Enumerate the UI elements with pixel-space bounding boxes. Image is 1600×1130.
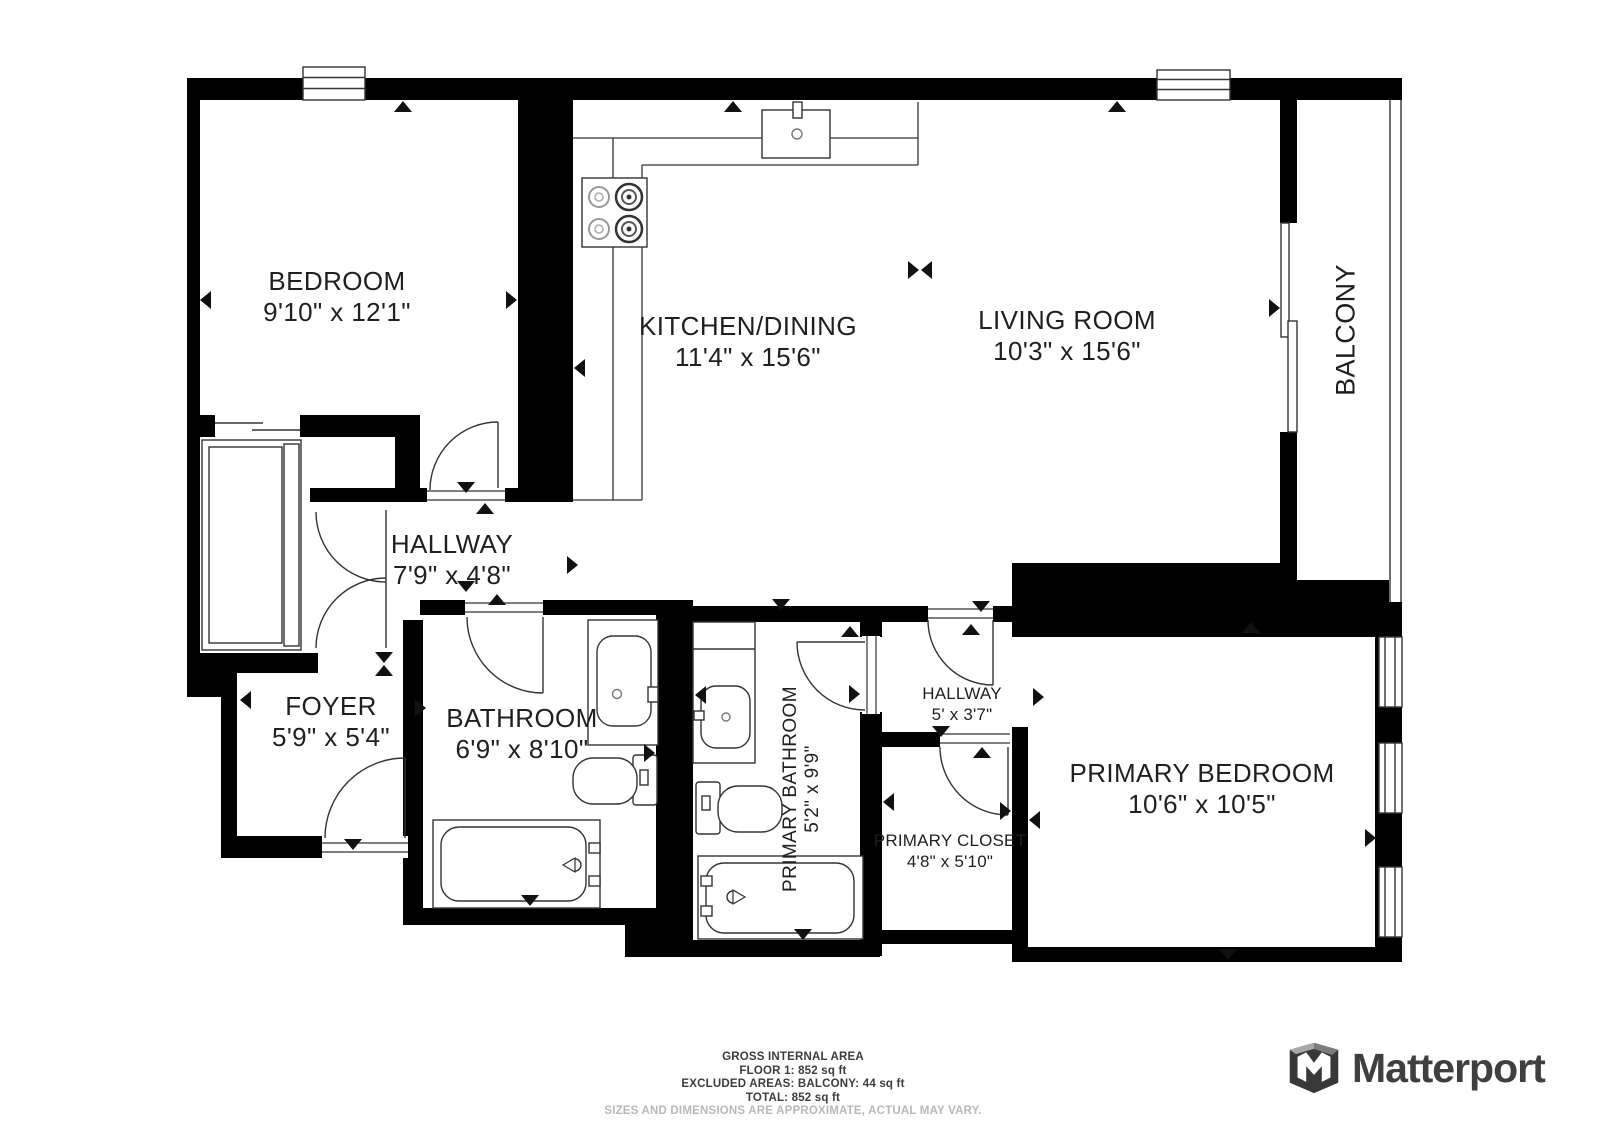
primary-toilet-icon (696, 782, 782, 834)
kitchen-sink-icon (762, 102, 830, 158)
room-label-balcony: BALCONY (1331, 264, 1362, 396)
room-dims: 5'2" x 9'9" (802, 686, 824, 892)
room-label-hallway: HALLWAY 7'9" x 4'8" (391, 529, 513, 591)
wardrobe-icon (202, 440, 301, 650)
room-dims: 10'6" x 10'5" (1069, 789, 1334, 820)
room-dims: 7'9" x 4'8" (391, 560, 513, 591)
room-name: HALLWAY (922, 683, 1002, 704)
area-floor-line: FLOOR 1: 852 sq ft (604, 1065, 981, 1079)
room-name: PRIMARY BEDROOM (1069, 758, 1334, 789)
room-name: FOYER (272, 691, 390, 722)
matterport-logo-icon (1286, 1042, 1342, 1094)
room-name: BATHROOM (446, 703, 598, 734)
room-dims: 5' x 3'7" (922, 704, 1002, 725)
floorplan-drawing (0, 0, 1600, 1130)
kitchen-counter (573, 102, 918, 500)
primary-bedroom-window-icons (1379, 637, 1402, 937)
room-name: KITCHEN/DINING (639, 311, 857, 342)
room-label-bathroom: BATHROOM 6'9" x 8'10" (446, 703, 598, 765)
room-label-primary-bedroom: PRIMARY BEDROOM 10'6" x 10'5" (1069, 758, 1334, 820)
room-dims: 6'9" x 8'10" (446, 734, 598, 765)
room-name: BALCONY (1331, 264, 1362, 396)
bathroom-vanity-icon (588, 620, 658, 745)
bedroom-closet-sliding-door-icon (215, 417, 300, 435)
area-summary-title: GROSS INTERNAL AREA (604, 1051, 981, 1065)
stove-icon (582, 178, 647, 247)
room-name: BEDROOM (263, 266, 411, 297)
area-summary: GROSS INTERNAL AREA FLOOR 1: 852 sq ft E… (604, 1051, 981, 1119)
room-name: LIVING ROOM (978, 305, 1156, 336)
room-label-primary-closet: PRIMARY CLOSET 4'8" x 5'10" (874, 830, 1026, 872)
room-label-living-room: LIVING ROOM 10'3" x 15'6" (978, 305, 1156, 367)
room-dims: 5'9" x 5'4" (272, 722, 390, 753)
room-dims: 9'10" x 12'1" (263, 297, 411, 328)
room-label-hallway-2: HALLWAY 5' x 3'7" (922, 683, 1002, 725)
room-name: PRIMARY BATHROOM (780, 686, 802, 892)
room-label-kitchen-dining: KITCHEN/DINING 11'4" x 15'6" (639, 311, 857, 373)
area-excluded-line: EXCLUDED AREAS: BALCONY: 44 sq ft (604, 1078, 981, 1092)
matterport-logo: Matterport (1286, 1042, 1545, 1094)
bedroom-window-icon (303, 67, 365, 100)
room-label-primary-bathroom: PRIMARY BATHROOM 5'2" x 9'9" (780, 686, 824, 892)
matterport-logo-text: Matterport (1352, 1042, 1545, 1094)
bathtub-icon (433, 820, 600, 908)
room-name: PRIMARY CLOSET (874, 830, 1026, 851)
room-dims: 11'4" x 15'6" (639, 342, 857, 373)
balcony-rail (1389, 100, 1403, 602)
room-name: HALLWAY (391, 529, 513, 560)
area-total-line: TOTAL: 852 sq ft (604, 1092, 981, 1106)
room-label-bedroom: BEDROOM 9'10" x 12'1" (263, 266, 411, 328)
floorplan-page: BEDROOM 9'10" x 12'1" KITCHEN/DINING 11'… (0, 0, 1600, 1130)
room-dims: 10'3" x 15'6" (978, 336, 1156, 367)
living-room-window-icon (1157, 70, 1230, 100)
disclaimer-text: SIZES AND DIMENSIONS ARE APPROXIMATE, AC… (604, 1105, 981, 1119)
room-label-foyer: FOYER 5'9" x 5'4" (272, 691, 390, 753)
sliding-door-icon (1281, 223, 1297, 432)
room-dims: 4'8" x 5'10" (874, 851, 1026, 872)
